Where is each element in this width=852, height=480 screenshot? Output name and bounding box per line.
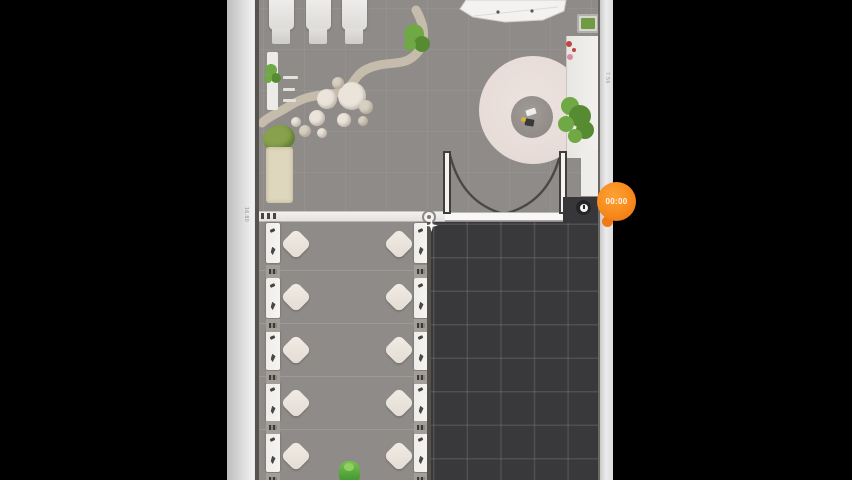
lounger-bench [266, 223, 280, 263]
bench-side-table [414, 473, 428, 480]
dining-table [280, 281, 311, 312]
counter-decor-item [566, 41, 572, 47]
counter-plant [568, 129, 582, 143]
path-plant [414, 36, 430, 52]
dimension-label-left: 16.80 [243, 207, 249, 222]
bench-side-table [414, 421, 428, 434]
counter-decor-item [572, 48, 576, 52]
lounger-bench [266, 278, 280, 318]
pebble-stone [299, 125, 311, 137]
bench-side-table [266, 371, 280, 384]
pebble-stone [309, 110, 325, 126]
lounger-bench [414, 278, 428, 318]
furniture-layer [0, 0, 852, 480]
treatment-table-base [345, 28, 363, 44]
timer-value: 00:00 [606, 197, 628, 206]
lounger-bench [414, 330, 428, 370]
lounger-bench [266, 432, 280, 472]
shelf-towel [283, 99, 296, 102]
bench-side-table [414, 371, 428, 384]
bench-side-table [266, 473, 280, 480]
bench-side-table [266, 265, 280, 278]
lounger-bench [266, 330, 280, 370]
dining-table [383, 228, 414, 259]
treatment-table-base [272, 28, 290, 44]
treatment-table [269, 0, 294, 30]
treatment-table-base [309, 28, 327, 44]
lounger-bench [414, 432, 428, 472]
customer-character [339, 461, 360, 480]
game-screen: 00:00 16.80 7.56 [0, 0, 852, 480]
shelf-towel [283, 76, 298, 79]
bench-side-table [266, 319, 280, 332]
lounger-bench [414, 223, 428, 263]
pebble-stone [359, 100, 373, 114]
bench-side-table [414, 319, 428, 332]
expansion-border [427, 222, 431, 480]
dining-table [280, 440, 311, 471]
pebble-stone [317, 128, 327, 138]
path-plant [404, 39, 416, 51]
clock-icon [576, 200, 591, 215]
treatment-table [306, 0, 331, 30]
counter-decor-item [567, 54, 573, 60]
dining-table [383, 387, 414, 418]
shelf-plant [271, 73, 281, 83]
lounger-bench [414, 382, 428, 422]
dining-table [280, 387, 311, 418]
dining-table [383, 281, 414, 312]
shelf-towel [283, 88, 295, 91]
pebble-stone [337, 113, 351, 127]
bench-side-table [414, 265, 428, 278]
left-outer-wall [227, 0, 257, 480]
left-wall-edge [255, 0, 259, 480]
locked-expansion-area[interactable] [431, 222, 600, 480]
shelf-plant [264, 75, 272, 83]
pebble-stone [291, 117, 301, 127]
dining-table [383, 440, 414, 471]
timer-badge[interactable]: 00:00 [597, 182, 636, 221]
dining-table [280, 334, 311, 365]
dining-table [383, 334, 414, 365]
treatment-table [342, 0, 367, 30]
dining-table [280, 228, 311, 259]
pebble-stone [317, 89, 337, 109]
right-wall-edge [598, 0, 600, 480]
pebble-stone [332, 77, 344, 89]
bench-side-table [266, 421, 280, 434]
dimension-label-right: 7.56 [604, 72, 610, 84]
pebble-stone [358, 116, 368, 126]
lounger-bench [266, 382, 280, 422]
